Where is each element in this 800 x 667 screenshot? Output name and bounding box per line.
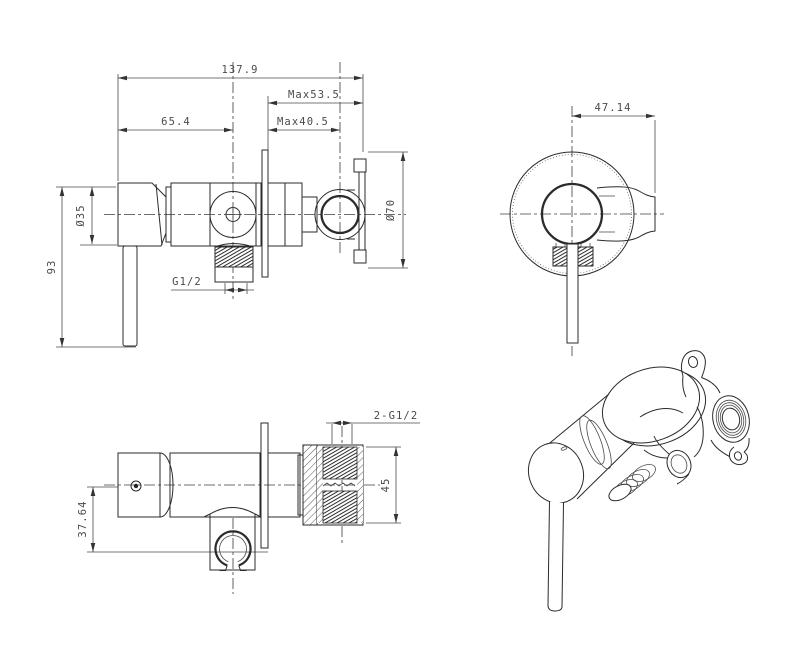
- dim-plate-max-depth: Max40.5: [268, 116, 340, 132]
- arrowhead-up: [91, 487, 96, 496]
- view-perspective: [520, 351, 755, 611]
- arrowhead-left: [268, 128, 277, 133]
- dim-body-diameter-label: Ø35: [75, 204, 87, 226]
- arrowhead-up: [401, 152, 406, 161]
- outlet-thread: [215, 247, 253, 267]
- wall-flange-3d: [592, 354, 711, 456]
- outlet-stud-right: [578, 247, 593, 266]
- holder-bracket-top-cap: [354, 159, 366, 172]
- dim-overall-height-label: 93: [46, 260, 58, 275]
- set-screw-center: [134, 484, 138, 488]
- dim-inlet-thread-label: 2-G1/2: [374, 410, 419, 422]
- mounting-ear-bottom: [729, 447, 747, 465]
- arrowhead-right: [331, 128, 340, 133]
- inlet-thread-lower: [323, 491, 357, 523]
- dim-outlet-thread-label: G1/2: [172, 276, 202, 288]
- arrowhead-left: [118, 128, 127, 133]
- arrowhead-down: [90, 235, 95, 244]
- wall-plate: [262, 150, 268, 277]
- dim-inlet-height-label: 45: [380, 478, 392, 493]
- dim-inlet-thread: 2-G1/2: [326, 410, 420, 425]
- dim-overall-width-label: 137.9: [221, 64, 258, 76]
- dim-holder-max-depth-label: Max53.5: [288, 89, 340, 101]
- extension-line: [225, 283, 247, 294]
- inlet-thread-upper: [323, 447, 357, 479]
- dim-outlet-thread: G1/2: [171, 276, 254, 294]
- ear-hole-top: [687, 356, 699, 369]
- knob-chamfer-line: [156, 184, 162, 245]
- dim-center-to-bracket: 47.14: [572, 102, 655, 193]
- arrowhead-right: [343, 421, 352, 426]
- outlet-thread-cap: [606, 481, 634, 504]
- dim-flange-diameter: Ø70: [385, 152, 405, 268]
- handle-lever-3d: [548, 502, 564, 612]
- dim-center-to-holder-label: 37.64: [77, 500, 89, 537]
- outlet-stud-left: [553, 247, 568, 266]
- body-top-edge-3d: [545, 394, 609, 447]
- outlet-collar: [215, 267, 253, 282]
- dim-inlet-height: 45: [380, 447, 398, 523]
- holder-cup-mouth: [663, 446, 696, 481]
- arrowhead-down: [394, 514, 399, 523]
- dim-holder-max-depth: Max53.5: [268, 89, 363, 105]
- arrowhead-right: [646, 114, 655, 119]
- arrowhead-left: [332, 421, 341, 426]
- technical-drawing: 137.9 Max53.5 65.4 Max40.5 Ø35: [0, 0, 800, 667]
- dim-overall-width: 137.9: [118, 64, 363, 80]
- arrowhead-up: [394, 447, 399, 456]
- view-front: 47.14: [500, 102, 664, 356]
- arrowhead-up: [90, 187, 95, 196]
- arrowhead-right: [238, 288, 247, 293]
- arrowhead-left: [268, 101, 277, 106]
- dim-center-to-bracket-label: 47.14: [594, 102, 631, 114]
- dim-knob-to-center-label: 65.4: [161, 116, 191, 128]
- valve-knob-3d: [520, 435, 593, 512]
- drawing-canvas: 137.9 Max53.5 65.4 Max40.5 Ø35: [0, 0, 800, 667]
- handle-lever-front: [567, 244, 578, 343]
- wall-plate-top: [261, 423, 268, 548]
- holder-bracket-bottom-cap: [354, 250, 366, 263]
- ear-hole-bottom: [734, 451, 743, 461]
- holder-bracket-web: [359, 172, 365, 250]
- screw-cross: [224, 206, 242, 223]
- outlet-thread-ridge: [630, 461, 659, 485]
- view-side-elevation: 137.9 Max53.5 65.4 Max40.5 Ø35: [46, 62, 408, 347]
- arrowhead-right: [224, 128, 233, 133]
- bracket-bottom-edge: [744, 438, 749, 452]
- arrowhead-left: [572, 114, 581, 119]
- arrowhead-down: [60, 338, 65, 347]
- inlet-wall-right: [357, 447, 363, 523]
- inlet-wall-left: [317, 447, 323, 523]
- bore-zigzag: [323, 483, 355, 486]
- dim-knob-to-center: 65.4: [118, 116, 233, 132]
- arrowhead-up: [60, 187, 65, 196]
- arrowhead-right: [354, 101, 363, 106]
- arrowhead-left: [118, 76, 127, 81]
- dim-center-to-holder: 37.64: [77, 487, 95, 552]
- dim-overall-height: 93: [46, 187, 64, 347]
- arrowhead-down: [401, 259, 406, 268]
- arrowhead-right: [354, 76, 363, 81]
- arrowhead-left: [225, 288, 234, 293]
- bracket-lower-link: [711, 440, 730, 457]
- arrowhead-down: [91, 543, 96, 552]
- inlet-flange-section: [303, 445, 317, 525]
- handle-lever: [123, 246, 137, 346]
- view-top: 2-G1/2 45 37.64: [77, 410, 420, 594]
- dim-plate-max-depth-label: Max40.5: [277, 116, 329, 128]
- dim-body-diameter: Ø35: [75, 187, 94, 244]
- dim-flange-diameter-label: Ø70: [385, 199, 397, 221]
